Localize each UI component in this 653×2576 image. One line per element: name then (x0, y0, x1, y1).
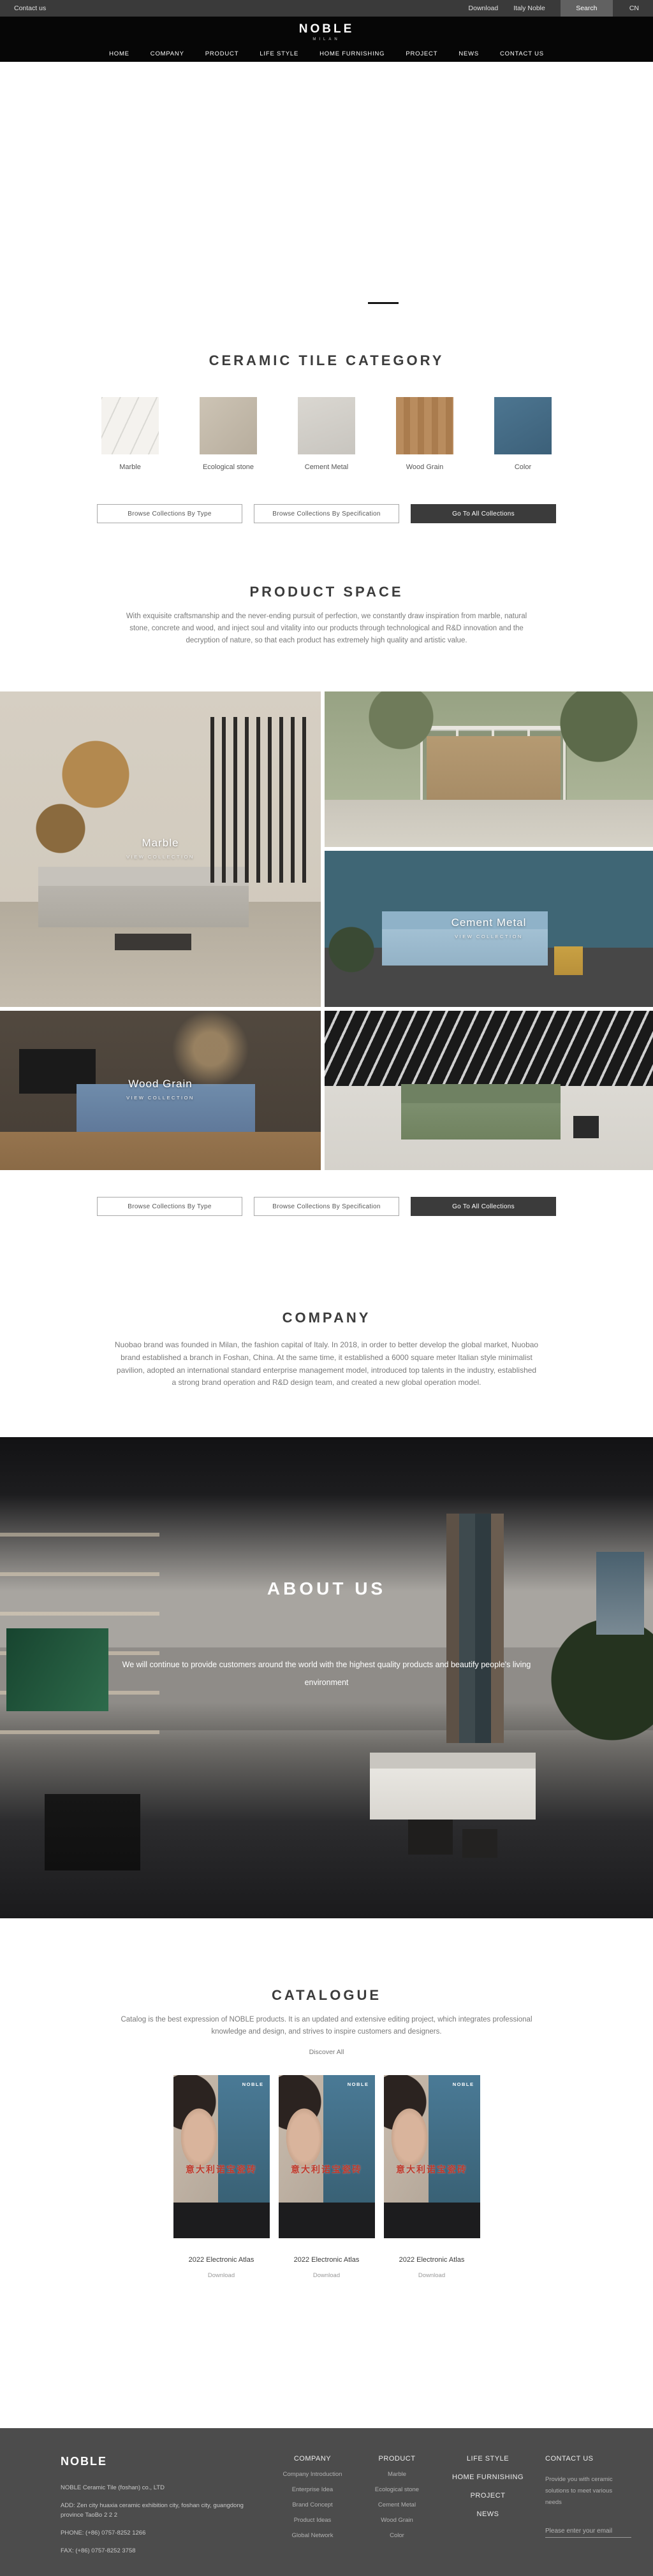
footer-company-name: NOBLE Ceramic Tile (foshan) co., LTD (61, 2484, 252, 2493)
footer-column-title: CONTACT US (545, 2455, 641, 2463)
nav-item-news[interactable]: NEWS (459, 50, 479, 57)
browse-by-type-button[interactable]: Browse Collections By Type (97, 504, 242, 523)
contact-us-link[interactable]: Contact us (14, 4, 46, 12)
discover-all-link[interactable]: Discover All (0, 2048, 653, 2056)
catalogue-title: CATALOGUE (0, 1987, 653, 2004)
nav-item-life-style[interactable]: LIFE STYLE (260, 50, 298, 57)
carousel-indicator-3[interactable] (330, 302, 361, 304)
nav-item-project[interactable]: PROJECT (406, 50, 437, 57)
atlas-name: 2022 Electronic Atlas (173, 2256, 270, 2264)
atlas-name: 2022 Electronic Atlas (384, 2256, 480, 2264)
footer-link-company-introduction[interactable]: Company Introduction (271, 2471, 354, 2478)
company-section: COMPANY Nuobao brand was founded in Mila… (0, 1243, 653, 1437)
footer-link-color[interactable]: Color (363, 2532, 430, 2539)
nav-item-home[interactable]: HOME (109, 50, 129, 57)
gallery-label-marble: Marble VIEW COLLECTION (0, 837, 321, 860)
footer-column-company: COMPANY Company Introduction Enterprise … (271, 2455, 354, 2556)
catalogue-caption-1: 2022 Electronic Atlas Download (173, 2256, 270, 2279)
footer-column-product: PRODUCT Marble Ecological stone Cement M… (363, 2455, 430, 2556)
collections-buttons-row: Browse Collections By Type Browse Collec… (0, 1197, 653, 1216)
about-us-section: ABOUT US We will continue to provide cus… (0, 1437, 653, 1918)
tile-label: Marble (101, 463, 159, 471)
footer-logo: NOBLE (61, 2455, 252, 2468)
category-tile-marble: Marble (101, 397, 159, 471)
product-space-title: PRODUCT SPACE (0, 584, 653, 600)
footer-link-life-style[interactable]: LIFE STYLE (440, 2455, 536, 2463)
cement-metal-swatch-image[interactable] (298, 397, 355, 454)
carousel-indicator-2[interactable] (293, 302, 323, 304)
catalogue-caption-2: 2022 Electronic Atlas Download (279, 2256, 375, 2279)
footer-company-info: NOBLE NOBLE Ceramic Tile (foshan) co., L… (61, 2455, 252, 2556)
about-us-title: ABOUT US (0, 1579, 653, 1599)
footer-address: ADD: Zen city huaxia ceramic exhibition … (61, 2501, 252, 2520)
browse-by-specification-button[interactable]: Browse Collections By Specification (254, 504, 399, 523)
wood-grain-swatch-image[interactable] (396, 397, 453, 454)
footer-phone: PHONE: (+86) 0757-8252 1266 (61, 2529, 252, 2538)
collection-name: Marble (0, 837, 321, 850)
download-link[interactable]: Download (384, 2272, 480, 2279)
footer-link-product-ideas[interactable]: Product Ideas (271, 2517, 354, 2524)
category-tile-wood-grain: Wood Grain (396, 397, 453, 471)
brand-logo[interactable]: NOBLE (0, 17, 653, 36)
nav-item-company[interactable]: COMPANY (150, 50, 184, 57)
footer-link-brand-concept[interactable]: Brand Concept (271, 2501, 354, 2508)
footer-link-marble[interactable]: Marble (363, 2471, 430, 2478)
catalogue-description: Catalog is the best expression of NOBLE … (119, 2014, 534, 2038)
carousel-indicator-1[interactable] (255, 302, 286, 304)
view-collection-link[interactable]: VIEW COLLECTION (0, 854, 321, 860)
download-link[interactable]: Download (279, 2272, 375, 2279)
category-tile-cement-metal: Cement Metal (298, 397, 355, 471)
topbar-right-group: Download Italy Noble Search CN (469, 0, 639, 17)
about-us-description: We will continue to provide customers ar… (0, 1656, 653, 1691)
tile-label: Color (494, 463, 552, 471)
category-tile-ecological-stone: Ecological stone (200, 397, 257, 471)
footer-column-contact: CONTACT US Provide you with ceramic solu… (545, 2455, 641, 2556)
catalogue-section: CATALOGUE Catalog is the best expression… (0, 1918, 653, 2428)
footer-link-cement-metal[interactable]: Cement Metal (363, 2501, 430, 2508)
footer-fax: FAX: (+86) 0757-8252 3758 (61, 2547, 252, 2556)
footer-column-title: COMPANY (271, 2455, 354, 2463)
top-utility-bar: Contact us Download Italy Noble Search C… (0, 0, 653, 17)
company-description: Nuobao brand was founded in Milan, the f… (115, 1339, 539, 1389)
catalogue-cover-3[interactable]: NOBLE 意大利诺宝瓷砖 (384, 2075, 480, 2238)
nav-item-product[interactable]: PRODUCT (205, 50, 239, 57)
cover-brand-logo: NOBLE (348, 2081, 369, 2087)
cover-title-text: 意大利诺宝瓷砖 (384, 2163, 480, 2176)
gallery-label-cement-metal: Cement Metal VIEW COLLECTION (325, 916, 653, 939)
ecological-stone-swatch-image[interactable] (200, 397, 257, 454)
gallery-image-green-sofa-room[interactable] (325, 1011, 653, 1170)
nav-item-contact-us[interactable]: CONTACT US (500, 50, 544, 57)
gallery-label-wood-grain: Wood Grain VIEW COLLECTION (0, 1078, 321, 1101)
marble-swatch-image[interactable] (101, 397, 159, 454)
gallery-image-wood-grain-room[interactable]: Wood Grain VIEW COLLECTION (0, 1011, 321, 1170)
footer-link-news[interactable]: NEWS (440, 2510, 536, 2518)
site-footer: NOBLE NOBLE Ceramic Tile (foshan) co., L… (0, 2428, 653, 2576)
company-title: COMPANY (0, 1310, 653, 1326)
collections-buttons-section: Browse Collections By Type Browse Collec… (0, 1170, 653, 1243)
catalogue-caption-3: 2022 Electronic Atlas Download (384, 2256, 480, 2279)
category-tile-color: Color (494, 397, 552, 471)
language-toggle-cn[interactable]: CN (629, 4, 639, 12)
category-section: CERAMIC TILE CATEGORY Marble Ecological … (0, 317, 653, 548)
carousel-indicator-4-active[interactable] (368, 302, 399, 304)
collection-name: Wood Grain (0, 1078, 321, 1090)
footer-contact-description: Provide you with ceramic solutions to me… (545, 2474, 625, 2508)
catalogue-cover-1[interactable]: NOBLE 意大利诺宝瓷砖 (173, 2075, 270, 2238)
footer-link-wood-grain[interactable]: Wood Grain (363, 2517, 430, 2524)
main-nav: HOME COMPANY PRODUCT LIFE STYLE HOME FUR… (0, 50, 653, 57)
footer-link-home-furnishing[interactable]: HOME FURNISHING (440, 2473, 536, 2481)
category-tiles-row: Marble Ecological stone Cement Metal Woo… (0, 397, 653, 471)
catalogue-captions-row: 2022 Electronic Atlas Download 2022 Elec… (0, 2256, 653, 2279)
footer-link-project[interactable]: PROJECT (440, 2492, 536, 2500)
tile-label: Cement Metal (298, 463, 355, 471)
color-swatch-image[interactable] (494, 397, 552, 454)
cover-title-text: 意大利诺宝瓷砖 (279, 2163, 375, 2176)
footer-inner: NOBLE NOBLE Ceramic Tile (foshan) co., L… (61, 2455, 653, 2556)
carousel-indicators (0, 302, 653, 304)
tile-label: Ecological stone (200, 463, 257, 471)
hero-carousel: ❮ ❯ (0, 62, 653, 317)
cover-brand-logo: NOBLE (453, 2081, 474, 2087)
download-link[interactable]: Download (173, 2272, 270, 2279)
footer-column-title: PRODUCT (363, 2455, 430, 2463)
nav-item-home-furnishing[interactable]: HOME FURNISHING (319, 50, 385, 57)
browse-by-specification-button[interactable]: Browse Collections By Specification (254, 1197, 399, 1216)
download-link[interactable]: Download (469, 4, 499, 12)
atlas-name: 2022 Electronic Atlas (279, 2256, 375, 2264)
view-collection-link[interactable]: VIEW COLLECTION (325, 934, 653, 939)
email-subscribe-input[interactable] (545, 2525, 631, 2538)
collection-name: Cement Metal (325, 916, 653, 929)
footer-link-global-network[interactable]: Global Network (271, 2532, 354, 2539)
category-buttons-row: Browse Collections By Type Browse Collec… (0, 504, 653, 523)
product-space-description: With exquisite craftsmanship and the nev… (119, 611, 534, 647)
carousel-next-arrow-icon[interactable]: ❯ (636, 179, 648, 196)
cover-title-text: 意大利诺宝瓷砖 (173, 2163, 270, 2176)
category-section-title: CERAMIC TILE CATEGORY (0, 352, 653, 369)
go-to-all-collections-button[interactable]: Go To All Collections (411, 1197, 556, 1216)
go-to-all-collections-button[interactable]: Go To All Collections (411, 504, 556, 523)
tile-label: Wood Grain (396, 463, 453, 471)
product-space-section: PRODUCT SPACE With exquisite craftsmansh… (0, 548, 653, 691)
gallery-image-marble-room[interactable]: Marble VIEW COLLECTION (0, 691, 321, 1007)
carousel-prev-arrow-icon[interactable]: ❮ (5, 179, 17, 196)
search-button[interactable]: Search (561, 0, 613, 17)
brand-logo-subtitle: MILAN (0, 38, 653, 41)
product-space-gallery: Marble VIEW COLLECTION Cement Metal VIEW… (0, 691, 653, 1170)
hero-slide-photo (0, 62, 653, 317)
gallery-image-glass-pavilion[interactable] (325, 691, 653, 847)
gallery-image-cement-metal-room[interactable]: Cement Metal VIEW COLLECTION (325, 851, 653, 1007)
cover-brand-logo: NOBLE (242, 2081, 264, 2087)
catalogue-cover-2[interactable]: NOBLE 意大利诺宝瓷砖 (279, 2075, 375, 2238)
catalogue-covers-row: NOBLE 意大利诺宝瓷砖 NOBLE 意大利诺宝瓷砖 NOBLE 意大利诺宝瓷… (0, 2075, 653, 2238)
footer-link-ecological-stone[interactable]: Ecological stone (363, 2486, 430, 2493)
site-header: NOBLE MILAN HOME COMPANY PRODUCT LIFE ST… (0, 17, 653, 62)
footer-link-enterprise-idea[interactable]: Enterprise Idea (271, 2486, 354, 2493)
view-collection-link[interactable]: VIEW COLLECTION (0, 1095, 321, 1101)
footer-column-links: LIFE STYLE HOME FURNISHING PROJECT NEWS (440, 2455, 536, 2556)
italy-noble-link[interactable]: Italy Noble (513, 4, 545, 12)
browse-by-type-button[interactable]: Browse Collections By Type (97, 1197, 242, 1216)
